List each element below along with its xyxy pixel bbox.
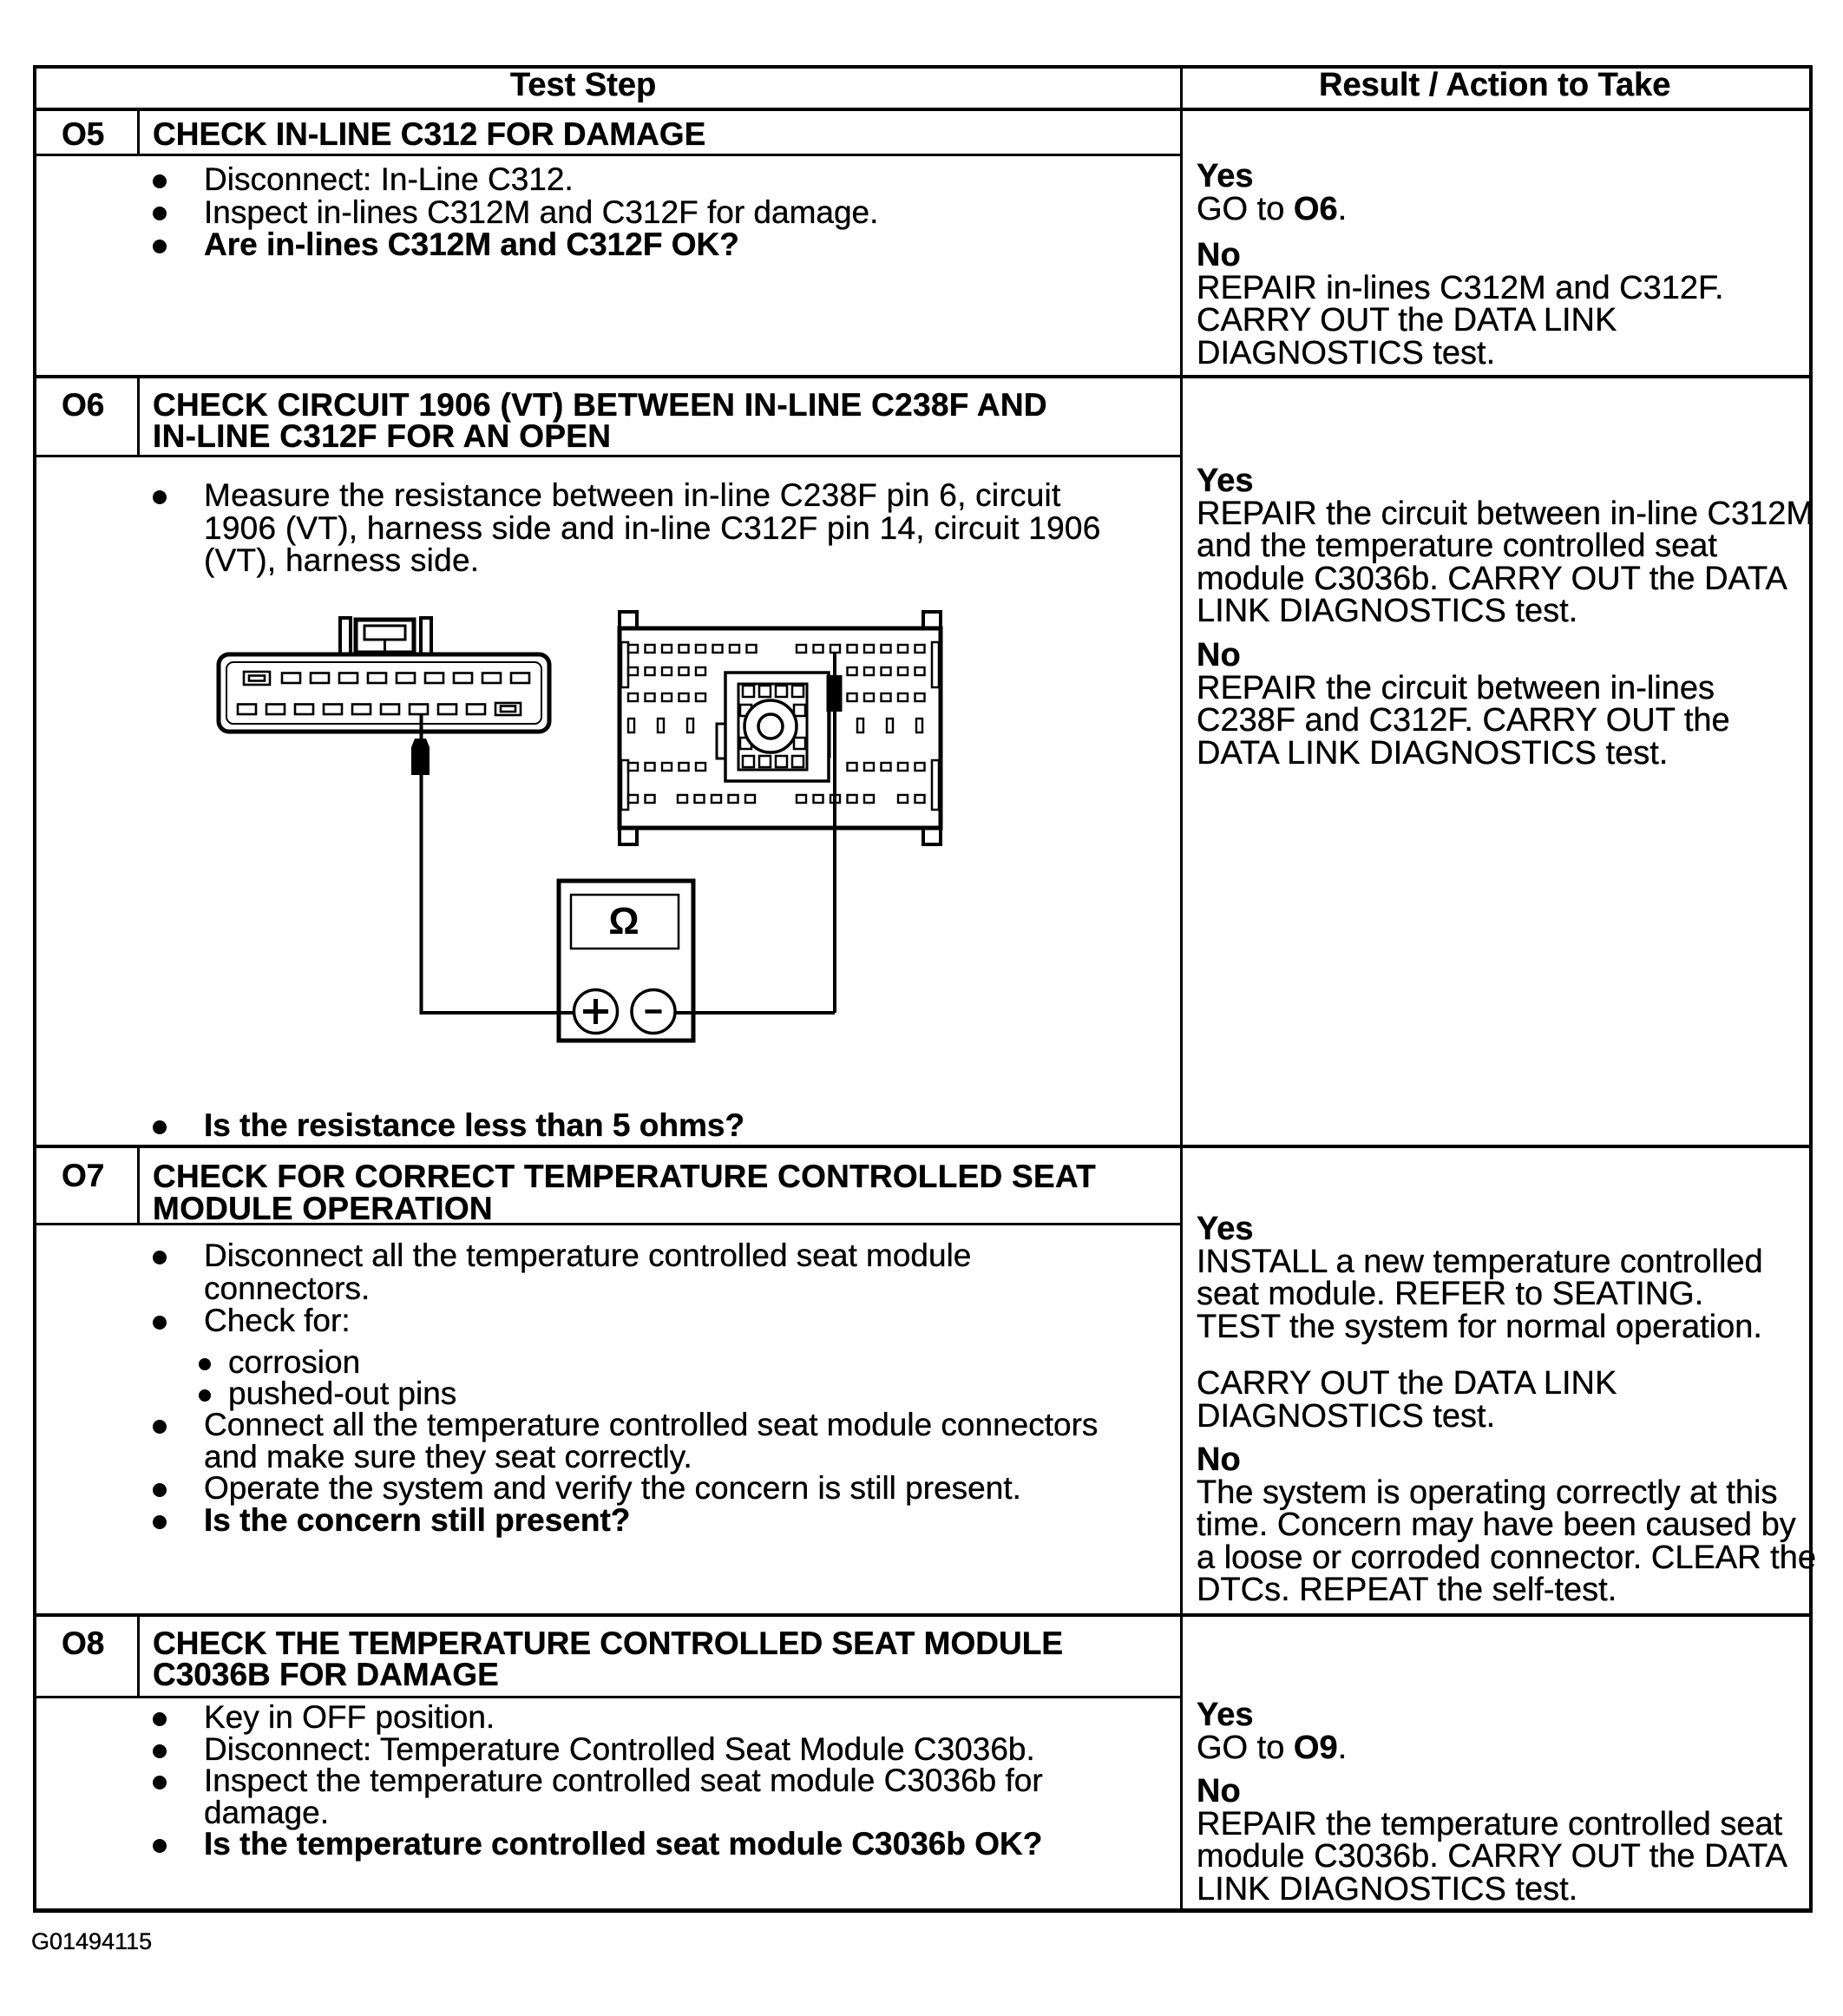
svg-text:Ω: Ω bbox=[608, 900, 639, 942]
